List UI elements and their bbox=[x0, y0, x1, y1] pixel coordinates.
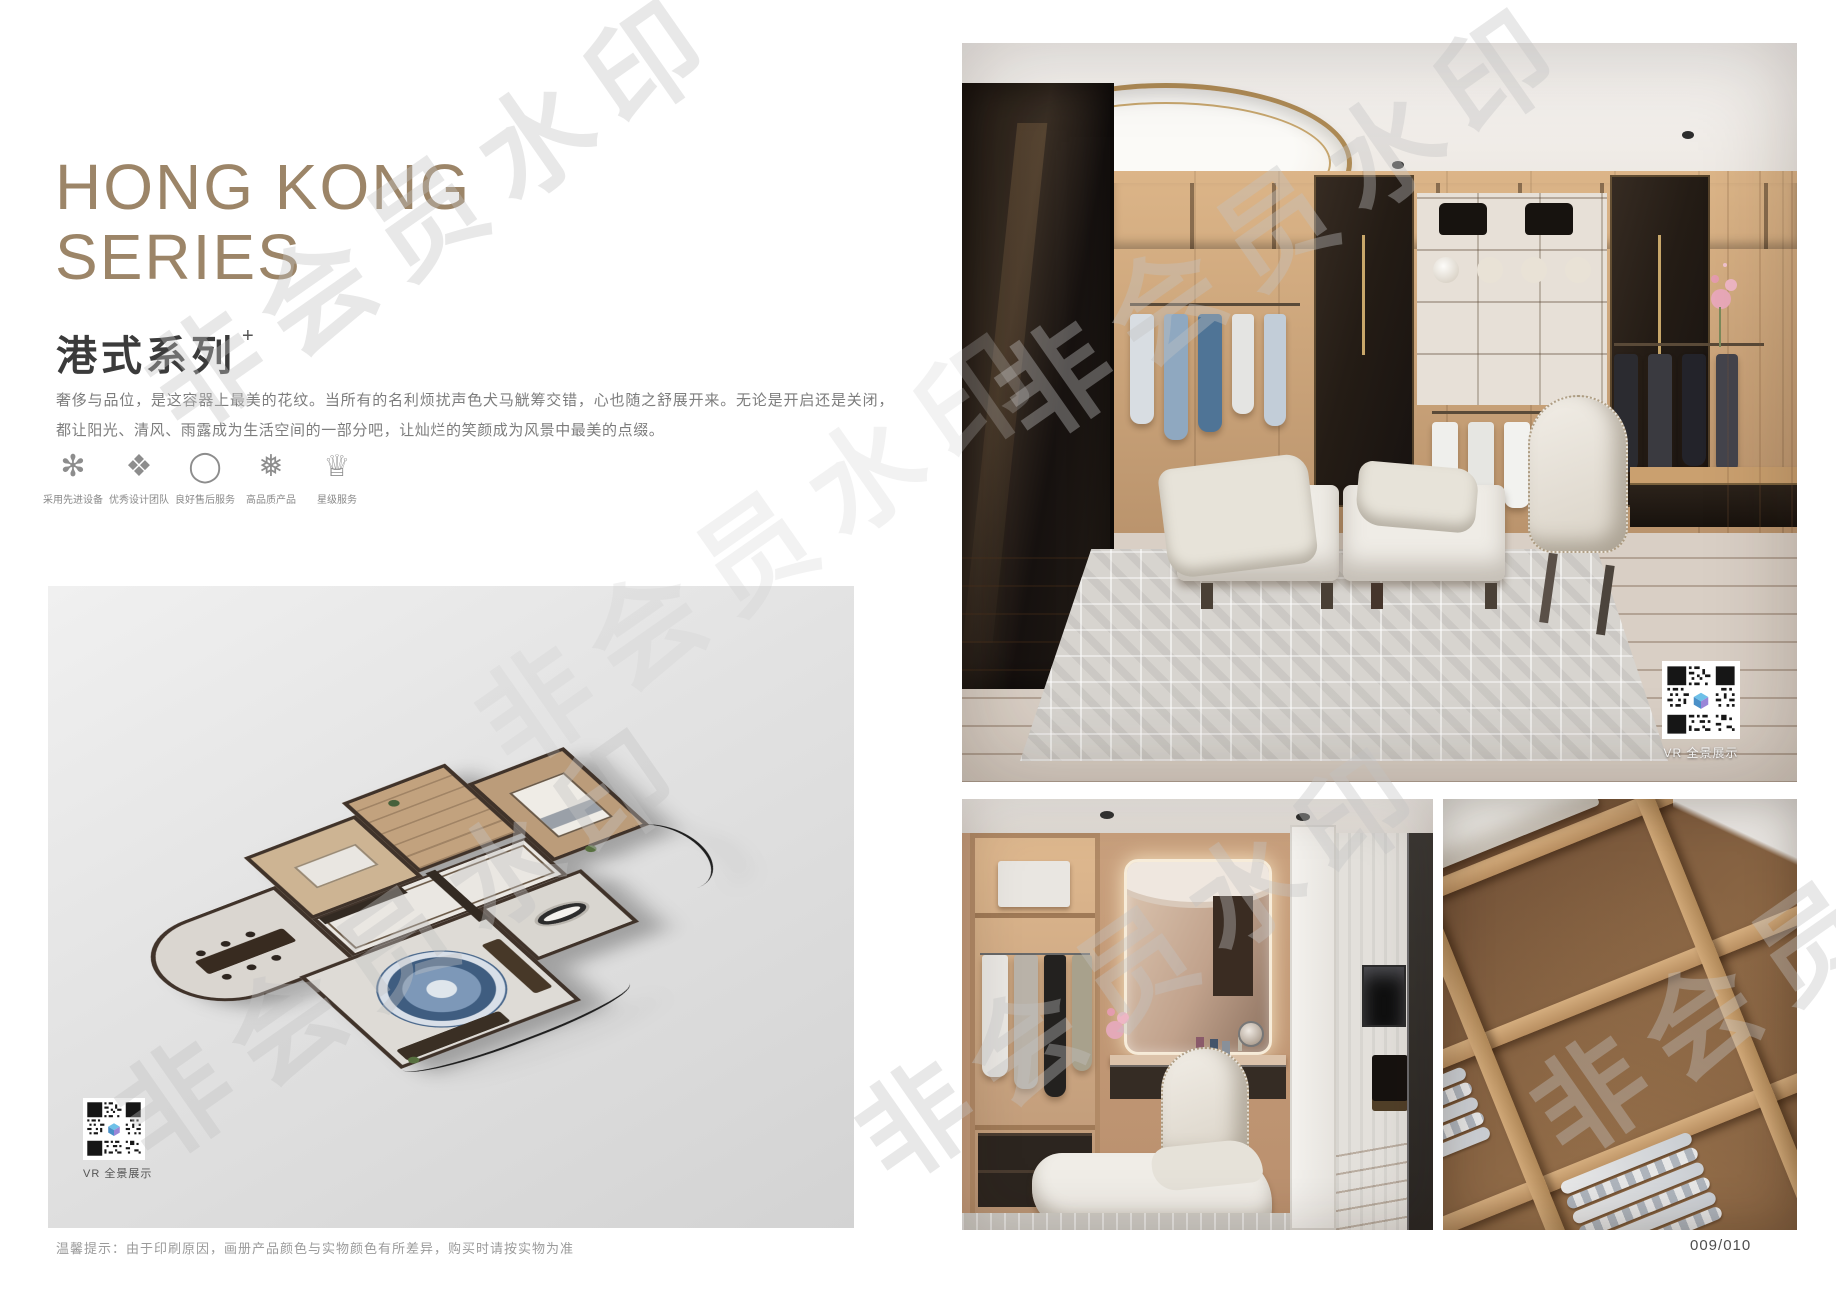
feature-item-quality: ❅ 高品质产品 bbox=[238, 448, 304, 506]
kitchen-island bbox=[294, 844, 379, 889]
chair-back bbox=[1528, 395, 1628, 553]
feature-label: 星级服务 bbox=[304, 491, 370, 506]
series-title-line1: HONG KONG bbox=[55, 152, 471, 222]
vanity-chair bbox=[1522, 395, 1634, 633]
garment bbox=[1198, 314, 1222, 432]
flower-stem bbox=[1719, 307, 1721, 347]
draped-blanket bbox=[1354, 460, 1479, 534]
walkin-closet-photo: VR 全景展示 bbox=[962, 43, 1797, 782]
dining-table bbox=[194, 928, 296, 975]
dressing-area-photo bbox=[962, 799, 1433, 1230]
draped-blanket bbox=[1157, 452, 1319, 579]
catalog-page-hong-kong-series: HONG KONG SERIES 港式系列+ 奢侈与品位，是这容器上最美的花纹。… bbox=[0, 0, 1836, 1307]
dark-wardrobe-cabinet bbox=[1314, 175, 1414, 507]
series-description: 奢侈与品位，是这容器上最美的花纹。当所有的名利烦扰声色犬马觥筹交错，心也随之舒展… bbox=[56, 386, 894, 446]
feature-label: 良好售后服务 bbox=[172, 491, 238, 506]
garment bbox=[1648, 354, 1672, 480]
rosette-icon: ❖ bbox=[106, 448, 172, 486]
crown-icon: ♕ bbox=[304, 448, 370, 486]
ring-icon: ◯ bbox=[172, 448, 238, 486]
center-shelf-unit bbox=[1417, 193, 1607, 405]
bed-throw bbox=[540, 799, 603, 829]
pinwheel-icon: ✻ bbox=[40, 448, 106, 486]
photo-vignette bbox=[962, 799, 1433, 1230]
snowflake-icon: ❅ bbox=[238, 448, 304, 486]
qr-code-image bbox=[83, 1098, 145, 1160]
shelf-detail-photo bbox=[1443, 799, 1797, 1230]
photo-vignette bbox=[1443, 799, 1797, 1230]
feature-item-after-sales: ◯ 良好售后服务 bbox=[172, 448, 238, 506]
feature-label: 优秀设计团队 bbox=[106, 491, 172, 506]
garment bbox=[1232, 314, 1254, 414]
feature-label: 采用先进设备 bbox=[40, 491, 106, 506]
garment bbox=[1130, 314, 1154, 424]
series-subtitle: 港式系列+ bbox=[56, 322, 258, 382]
plus-mark: + bbox=[242, 325, 258, 347]
feature-item-equipment: ✻ 采用先进设备 bbox=[40, 448, 106, 506]
qr-code-image bbox=[1662, 661, 1740, 739]
handbag bbox=[1525, 203, 1573, 235]
bed-ottoman bbox=[1177, 467, 1507, 619]
isometric-floorplan bbox=[61, 716, 779, 1121]
feature-label: 高品质产品 bbox=[238, 491, 304, 506]
handbag bbox=[1439, 203, 1487, 235]
series-title: HONG KONG SERIES bbox=[55, 152, 471, 292]
print-disclaimer: 温馨提示：由于印刷原因，画册产品颜色与实物颜色有所差异，购买时请按实物为准 bbox=[56, 1238, 574, 1257]
vr-qr-label: VR 全景展示 bbox=[83, 1165, 145, 1181]
dressing-mirror-right bbox=[1697, 171, 1797, 533]
chair-legs bbox=[1539, 553, 1558, 624]
garment bbox=[1264, 314, 1286, 426]
series-subtitle-text: 港式系列 bbox=[56, 333, 236, 379]
vr-qr-label: VR 全景展示 bbox=[1662, 744, 1740, 761]
feature-item-design-team: ❖ 优秀设计团队 bbox=[106, 448, 172, 506]
bed-legs bbox=[1201, 583, 1213, 609]
cabinet-handle bbox=[1658, 235, 1661, 355]
feature-item-service: ♕ 星级服务 bbox=[304, 448, 370, 506]
bathtub bbox=[527, 896, 596, 931]
hanging-clothes-left bbox=[1130, 303, 1300, 453]
hat-boxes bbox=[1433, 257, 1459, 283]
pink-flowers bbox=[1711, 289, 1731, 309]
bed bbox=[509, 772, 613, 837]
series-title-line2: SERIES bbox=[55, 222, 471, 292]
vr-qr-code: VR 全景展示 bbox=[1662, 661, 1740, 761]
page-number: 009/010 bbox=[1690, 1237, 1751, 1254]
cabinet-handle bbox=[1362, 235, 1365, 355]
garment bbox=[1164, 314, 1188, 440]
floorplan-render-image: VR 全景展示 bbox=[48, 586, 854, 1228]
feature-list: ✻ 采用先进设备 ❖ 优秀设计团队 ◯ 良好售后服务 ❅ 高品质产品 ♕ 星级服… bbox=[40, 448, 370, 506]
vr-qr-code: VR 全景展示 bbox=[83, 1098, 145, 1181]
ceiling-spotlights bbox=[1392, 161, 1404, 169]
